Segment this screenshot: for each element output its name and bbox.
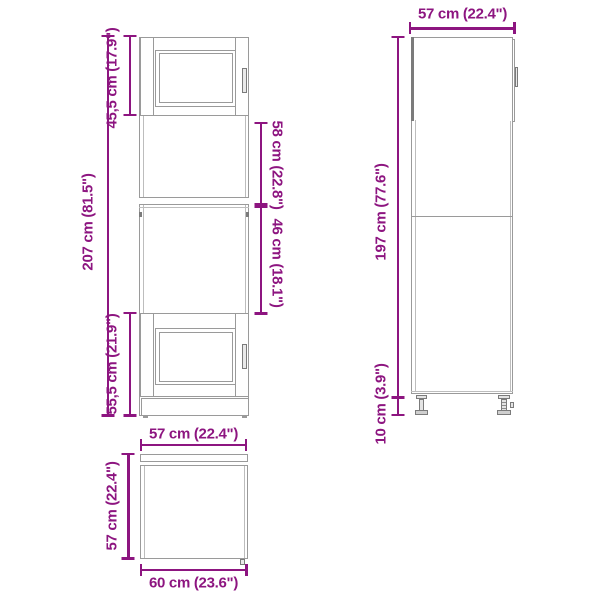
side-door-handle bbox=[515, 67, 518, 87]
dim-line-front-bottom-door-height bbox=[129, 313, 131, 416]
dim-label-front-bottom-door-height: 55,5 cm (21.9") bbox=[104, 313, 121, 414]
side-divider-line bbox=[411, 216, 513, 217]
dim-label-top-overall-width: 60 cm (23.6") bbox=[149, 574, 238, 591]
front-top-door-panel bbox=[155, 50, 236, 107]
front-hinge-mark-right bbox=[246, 212, 250, 217]
front-divider-rail bbox=[139, 197, 250, 205]
dim-label-front-lower-opening: 46 cm (18.1") bbox=[269, 218, 286, 307]
dim-label-front-upper-opening: 58 cm (22.8") bbox=[269, 120, 286, 209]
dim-line-top-depth bbox=[127, 454, 129, 559]
dim-label-top-inner-width: 57 cm (22.4") bbox=[149, 426, 238, 443]
side-leg-right-shaft bbox=[501, 399, 508, 411]
front-plinth bbox=[141, 398, 249, 416]
front-foot-right bbox=[242, 416, 247, 419]
front-top-door-panel-inner bbox=[159, 53, 233, 103]
side-leg-right-foot bbox=[497, 410, 512, 415]
dim-label-front-top-door-height: 45,5 cm (17.9") bbox=[104, 27, 121, 128]
front-bottom-door-panel-inner bbox=[159, 332, 233, 382]
top-inner-wall-right bbox=[244, 466, 245, 558]
top-carcass bbox=[140, 454, 248, 559]
side-bottom-inner-line bbox=[411, 391, 513, 392]
dim-line-front-top-door-height bbox=[129, 36, 131, 115]
top-latch-mark bbox=[240, 559, 245, 565]
dim-label-side-depth: 57 cm (22.4") bbox=[418, 5, 507, 22]
side-back-edge-band bbox=[411, 37, 415, 121]
dim-label-side-leg-height: 10 cm (3.9") bbox=[373, 363, 390, 444]
side-leg-left-shaft bbox=[419, 399, 424, 411]
front-foot-left bbox=[143, 416, 148, 419]
dim-line-top-inner-width bbox=[141, 444, 246, 446]
dim-line-side-depth bbox=[410, 27, 515, 29]
front-bottom-door bbox=[140, 313, 249, 397]
front-divider-line bbox=[139, 207, 250, 208]
front-bottom-door-handle bbox=[242, 344, 247, 370]
side-leg-left-foot bbox=[415, 410, 429, 415]
top-inner-wall-left bbox=[144, 466, 145, 558]
dim-label-front-total-height: 207 cm (81.5") bbox=[80, 173, 97, 270]
front-hinge-mark-left bbox=[139, 212, 143, 217]
top-door-edge-band bbox=[140, 461, 248, 466]
front-top-door-handle bbox=[242, 68, 247, 93]
front-top-door-stile-left bbox=[153, 38, 154, 116]
dim-label-side-carcass-height: 197 cm (77.6") bbox=[373, 163, 390, 260]
dim-line-front-lower-opening bbox=[260, 207, 262, 314]
side-inner-wall-left bbox=[415, 120, 416, 391]
side-leg-right-clip bbox=[510, 402, 514, 408]
front-top-door bbox=[140, 37, 249, 117]
front-bottom-door-stile-left bbox=[153, 314, 154, 396]
side-inner-wall-right bbox=[510, 121, 511, 391]
dim-line-side-leg-height bbox=[397, 398, 399, 416]
dim-label-top-depth: 57 cm (22.4") bbox=[103, 461, 120, 550]
cabinet-dimension-diagram: 207 cm (81.5") 45,5 cm (17.9") 55,5 cm (… bbox=[0, 0, 600, 600]
front-bottom-door-panel bbox=[155, 328, 236, 385]
dim-line-top-overall-width bbox=[141, 569, 247, 571]
dim-line-side-carcass-height bbox=[397, 37, 399, 398]
dim-line-front-upper-opening bbox=[260, 123, 262, 205]
